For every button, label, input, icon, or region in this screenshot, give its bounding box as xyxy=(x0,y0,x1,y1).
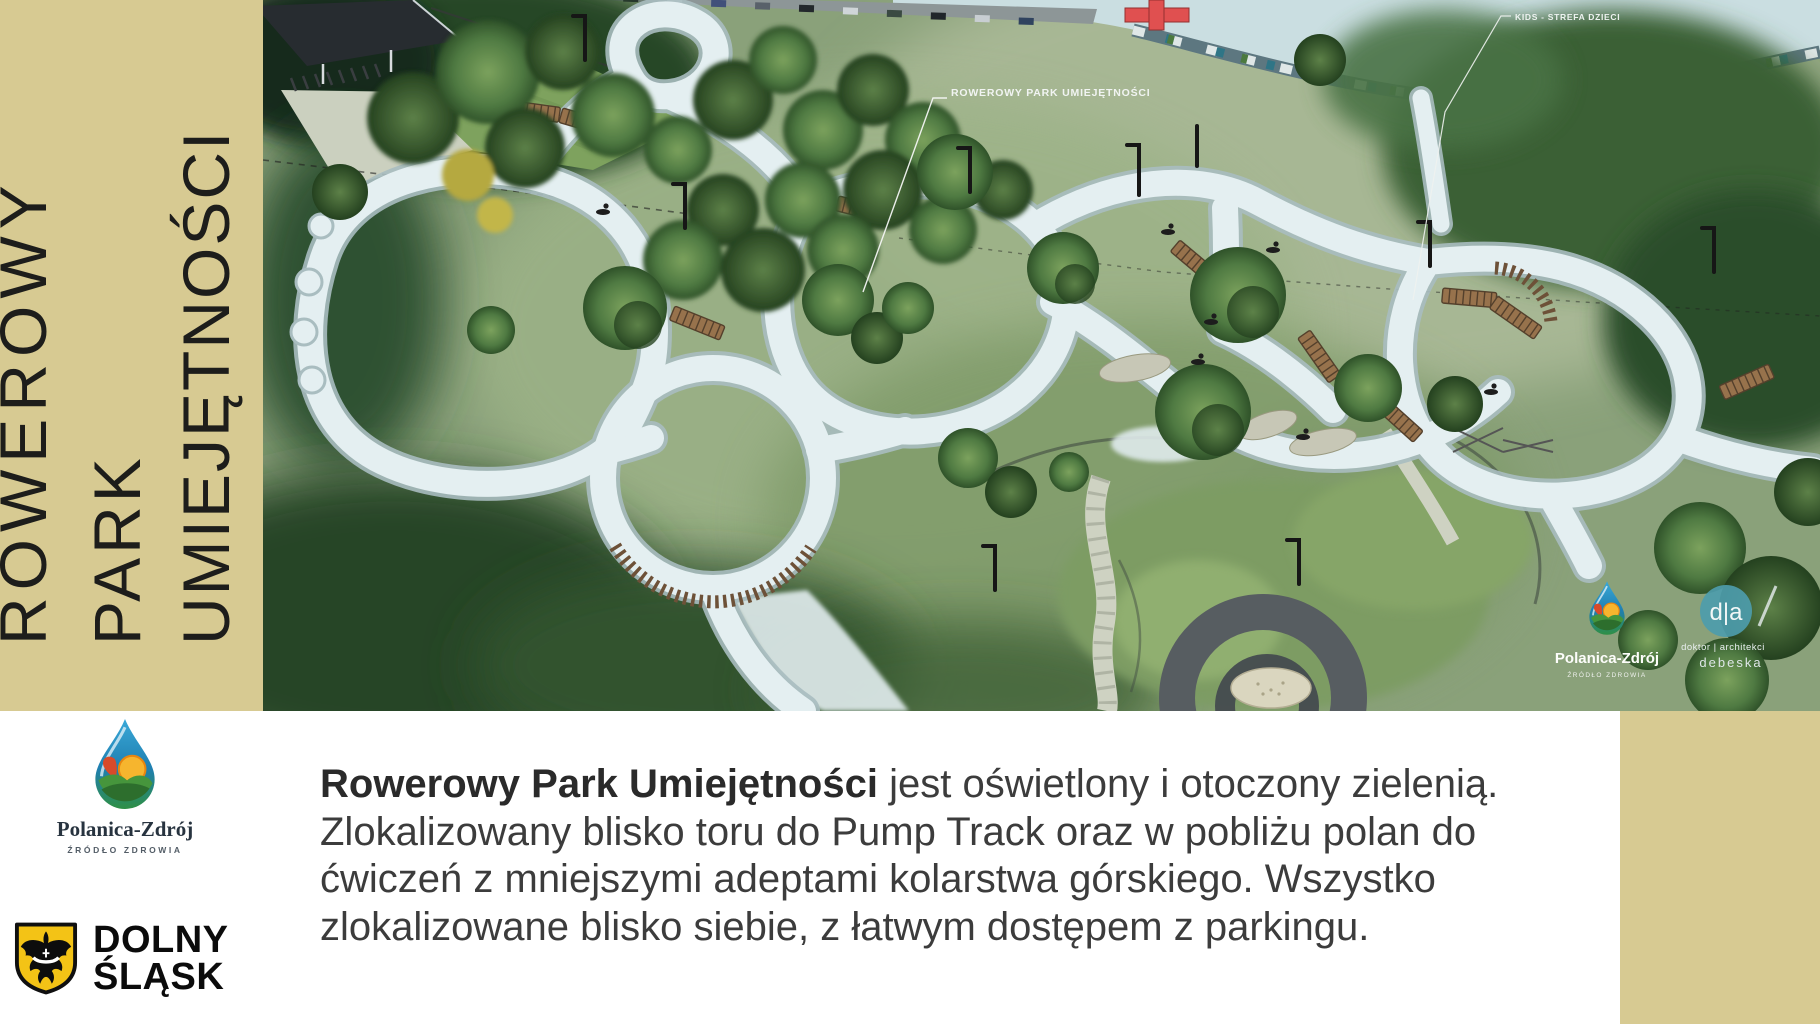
title-word-umiejetnosci: UMIEJĘTNOŚCI xyxy=(173,130,239,645)
description-paragraph: Rowerowy Park Umiejętności jest oświetlo… xyxy=(320,761,1498,951)
paragraph-line: Rowerowy Park Umiejętności jest oświetlo… xyxy=(320,761,1498,809)
studio-line1: doktor | architekci xyxy=(1681,642,1765,653)
park-label: ROWEROWY PARK UMIEJĘTNOŚCI xyxy=(951,86,1151,99)
yellow-bush xyxy=(442,149,494,201)
dolny-slask-wordmark: DOLNY ŚLĄSK xyxy=(93,922,229,994)
paragraph-line: Zlokalizowany blisko toru do Pump Track … xyxy=(320,809,1498,857)
paragraph-line: zlokalizowane blisko siebie, z łatwym do… xyxy=(320,904,1498,952)
park-rendering-image: ROWEROWY PARK UMIEJĘTNOŚCI KIDS - STREFA… xyxy=(263,0,1820,711)
paragraph-lead: Rowerowy Park Umiejętności xyxy=(320,762,878,806)
title-word-park: PARK xyxy=(84,454,150,645)
paragraph-line: ćwiczeń z mniejszymi adeptami kolarstwa … xyxy=(320,856,1498,904)
eagle-shield-icon xyxy=(14,921,78,996)
right-accent-column xyxy=(1620,711,1820,1024)
kids-zone-label: KIDS - STREFA DZIECI xyxy=(1515,12,1620,22)
studio-monogram: d|a xyxy=(1710,599,1744,626)
watermark-polanica-tagline: ŹRÓDŁO ZDROWIA xyxy=(1567,670,1646,679)
polanica-drop-icon xyxy=(86,717,164,811)
watermark-polanica-name: Polanica-Zdrój xyxy=(1555,650,1659,667)
title-word-rowerowy: ROWEROWY xyxy=(0,178,56,645)
polanica-tagline: ŹRÓDŁO ZDROWIA xyxy=(36,845,214,855)
studio-line2: debeska xyxy=(1699,655,1762,670)
polanica-name: Polanica-Zdrój xyxy=(36,817,214,842)
park-rendering: ROWEROWY PARK UMIEJĘTNOŚCI KIDS - STREFA… xyxy=(263,0,1820,711)
dolny-line1: DOLNY xyxy=(93,922,229,958)
footer: Polanica-Zdrój ŹRÓDŁO ZDROWIA DOLNY ŚLĄS… xyxy=(0,711,1620,1024)
dolny-slask-logo: DOLNY ŚLĄSK xyxy=(14,921,229,996)
dolny-line2: ŚLĄSK xyxy=(93,959,229,995)
sidebar-title-panel: ROWEROWY PARK UMIEJĘTNOŚCI xyxy=(0,0,263,711)
polanica-logo: Polanica-Zdrój ŹRÓDŁO ZDROWIA xyxy=(36,717,214,855)
